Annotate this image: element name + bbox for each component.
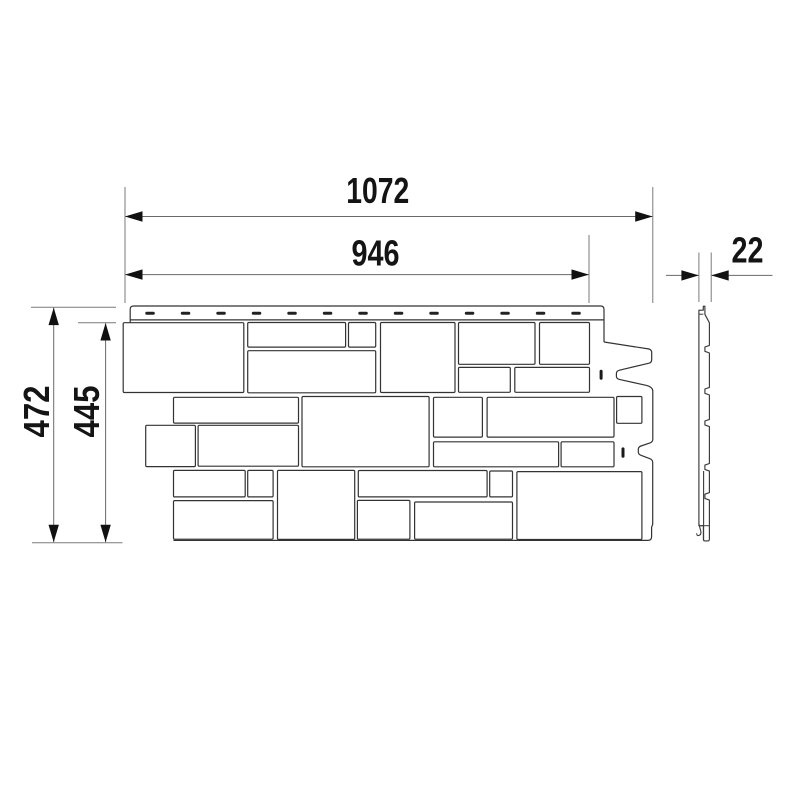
svg-text:946: 946 [352,233,400,274]
svg-text:472: 472 [16,386,57,438]
svg-text:445: 445 [66,386,107,438]
svg-text:22: 22 [732,230,764,271]
svg-text:1072: 1072 [346,170,409,211]
